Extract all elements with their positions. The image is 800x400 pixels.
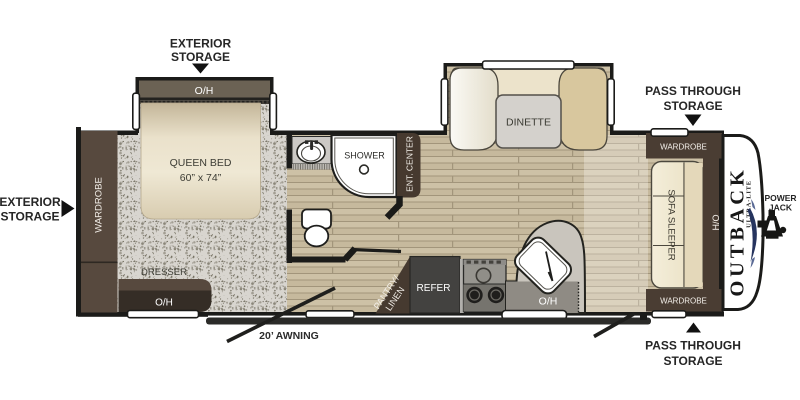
svg-text:WARDROBE: WARDROBE (660, 143, 707, 152)
svg-text:STORAGE: STORAGE (663, 99, 722, 113)
svg-text:60” x 74”: 60” x 74” (180, 172, 222, 184)
svg-text:POWER: POWER (764, 193, 796, 203)
svg-text:SOFA SLEEPER: SOFA SLEEPER (666, 189, 677, 260)
svg-text:PASS THROUGH: PASS THROUGH (645, 339, 741, 353)
svg-text:O/H: O/H (539, 296, 558, 308)
svg-text:EXTERIOR: EXTERIOR (170, 37, 232, 51)
svg-text:20’ AWNING: 20’ AWNING (259, 330, 319, 342)
svg-text:STORAGE: STORAGE (663, 354, 722, 368)
svg-text:STORAGE: STORAGE (171, 50, 230, 64)
svg-text:O/H: O/H (155, 298, 173, 309)
svg-text:O/H: O/H (195, 85, 214, 97)
svg-text:QUEEN BED: QUEEN BED (170, 157, 232, 169)
svg-text:STORAGE: STORAGE (0, 210, 59, 224)
svg-text:WARDROBE: WARDROBE (660, 297, 707, 306)
svg-text:ENT. CENTER: ENT. CENTER (405, 136, 415, 192)
svg-text:O/H: O/H (711, 214, 721, 230)
svg-text:DRESSER: DRESSER (141, 267, 187, 278)
svg-text:WARDROBE: WARDROBE (94, 177, 105, 233)
svg-text:EXTERIOR: EXTERIOR (0, 195, 61, 209)
svg-text:DINETTE: DINETTE (506, 117, 551, 129)
svg-text:REFER: REFER (417, 283, 451, 294)
svg-text:JACK: JACK (769, 203, 793, 213)
svg-text:SHOWER: SHOWER (344, 151, 385, 161)
svg-text:PASS THROUGH: PASS THROUGH (645, 84, 741, 98)
